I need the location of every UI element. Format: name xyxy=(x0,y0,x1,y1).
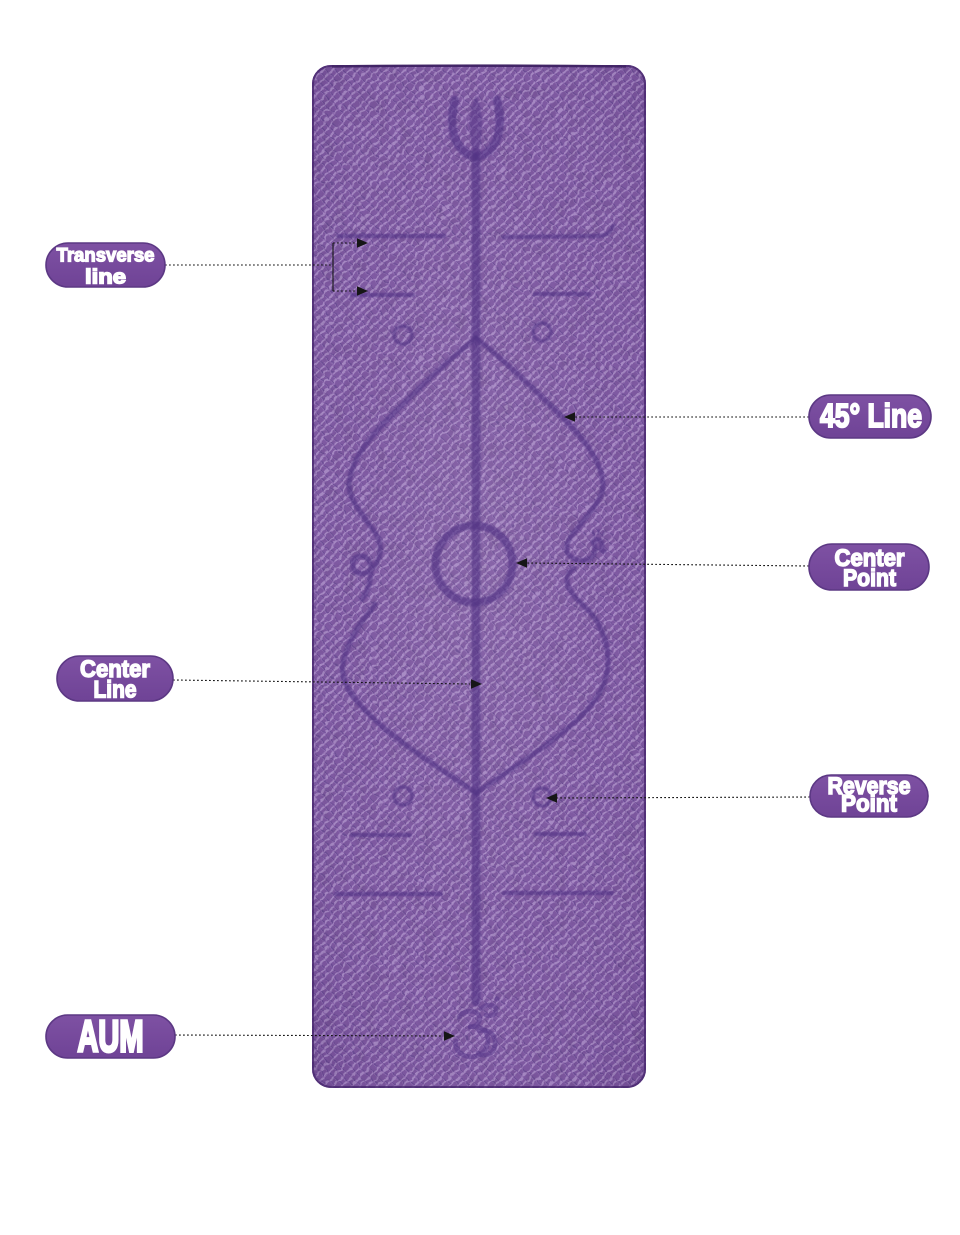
svg-text:line: line xyxy=(85,265,126,288)
svg-text:Point: Point xyxy=(843,565,896,592)
svg-text:45° Line: 45° Line xyxy=(820,397,922,435)
svg-text:Transverse: Transverse xyxy=(57,244,155,266)
svg-text:Point: Point xyxy=(841,791,897,818)
svg-text:Line: Line xyxy=(94,677,137,704)
svg-text:AUM: AUM xyxy=(78,1011,144,1060)
